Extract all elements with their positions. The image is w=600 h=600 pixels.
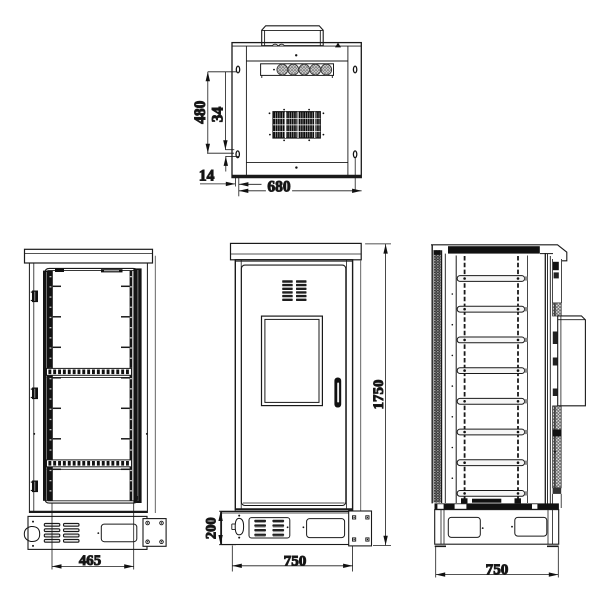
svg-text:465: 465 [79, 553, 101, 569]
svg-text:200: 200 [203, 517, 219, 539]
svg-text:480: 480 [192, 100, 209, 124]
svg-text:750: 750 [284, 552, 307, 569]
svg-text:680: 680 [267, 179, 291, 196]
svg-text:34: 34 [210, 107, 227, 123]
svg-text:14: 14 [199, 168, 215, 185]
svg-text:1750: 1750 [371, 380, 387, 410]
svg-text:750: 750 [486, 561, 509, 578]
